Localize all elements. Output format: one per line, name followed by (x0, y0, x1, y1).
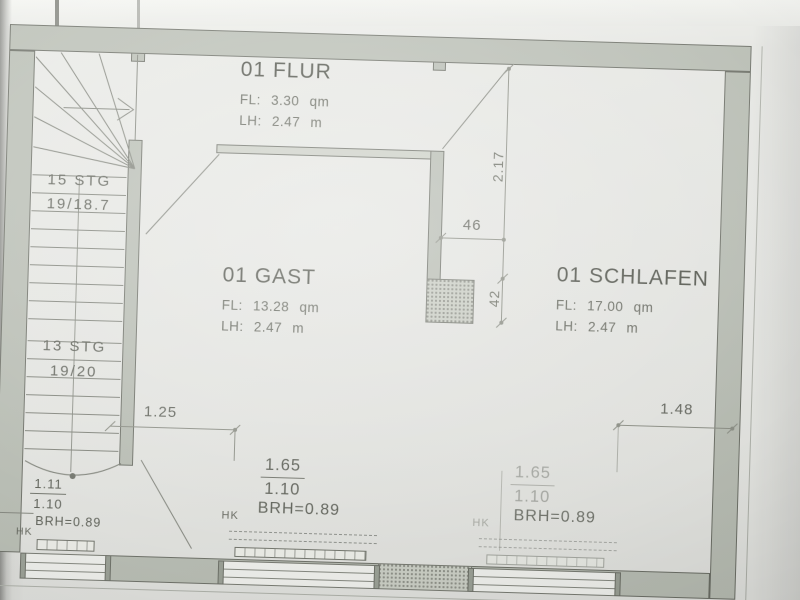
window-size-schlafen: 1.65 1.10 (510, 463, 555, 507)
room-label-schlafen: 01 SCHLAFEN FL: 17.00 qm LH: 2.47 m (555, 263, 709, 340)
parapet-height-stair: BRH=0.89 (35, 514, 101, 530)
parapet-height-gast: BRH=0.89 (257, 500, 340, 520)
window-size-stair: 1.11 1.10 (30, 476, 67, 512)
room-clear-height: LH: 2.47 m (555, 315, 708, 341)
room-area: FL: 3.30 qm (240, 89, 332, 113)
radiator-label-schlafen: HK (472, 517, 490, 530)
dim-niche-width: 46 (444, 216, 500, 235)
window-height: 1.10 (510, 487, 555, 507)
parapet-height-schlafen: BRH=0.89 (513, 507, 596, 527)
window-width: 1.65 (261, 456, 306, 479)
dim-flur-depth: 2.17 (489, 146, 506, 186)
room-name: 01 FLUR (240, 58, 332, 85)
dim-offset-right: 1.48 (645, 400, 709, 419)
stair-walk-line (25, 177, 130, 481)
room-clear-height: LH: 2.47 m (221, 315, 319, 339)
floor-plan: 01 FLUR FL: 3.30 qm LH: 2.47 m 01 GAST F… (0, 24, 770, 600)
window-width: 1.65 (511, 463, 556, 486)
photo-artifact-2 (137, 0, 140, 28)
stair-upper-rise-run: 19/18.7 (36, 195, 120, 214)
window-height: 1.10 (30, 496, 67, 512)
room-area: FL: 13.28 qm (221, 294, 319, 318)
window-width: 1.11 (30, 476, 67, 495)
window-height: 1.10 (260, 480, 305, 500)
dim-offset-left: 1.25 (128, 403, 192, 422)
dim-niche-depth: 42 (486, 284, 503, 312)
room-label-gast: 01 GAST FL: 13.28 qm LH: 2.47 m (221, 263, 321, 339)
door-swing-lines (137, 59, 507, 557)
photo-top-margin (0, 0, 800, 26)
window-size-gast: 1.65 1.10 (260, 456, 305, 500)
room-clear-height: LH: 2.47 m (239, 110, 331, 134)
room-name: 01 SCHLAFEN (556, 263, 709, 292)
stair-lower-steps: 13 STG (32, 337, 116, 356)
room-label-flur: 01 FLUR FL: 3.30 qm LH: 2.47 m (239, 58, 332, 134)
radiator-label-gast: HK (221, 509, 239, 522)
stair-lower-rise-run: 19/20 (31, 362, 115, 381)
stair-winder-treads (33, 52, 138, 169)
stair-upper-steps: 15 STG (37, 171, 121, 190)
radiator-label-stair: HK (16, 525, 33, 537)
room-name: 01 GAST (222, 263, 320, 290)
